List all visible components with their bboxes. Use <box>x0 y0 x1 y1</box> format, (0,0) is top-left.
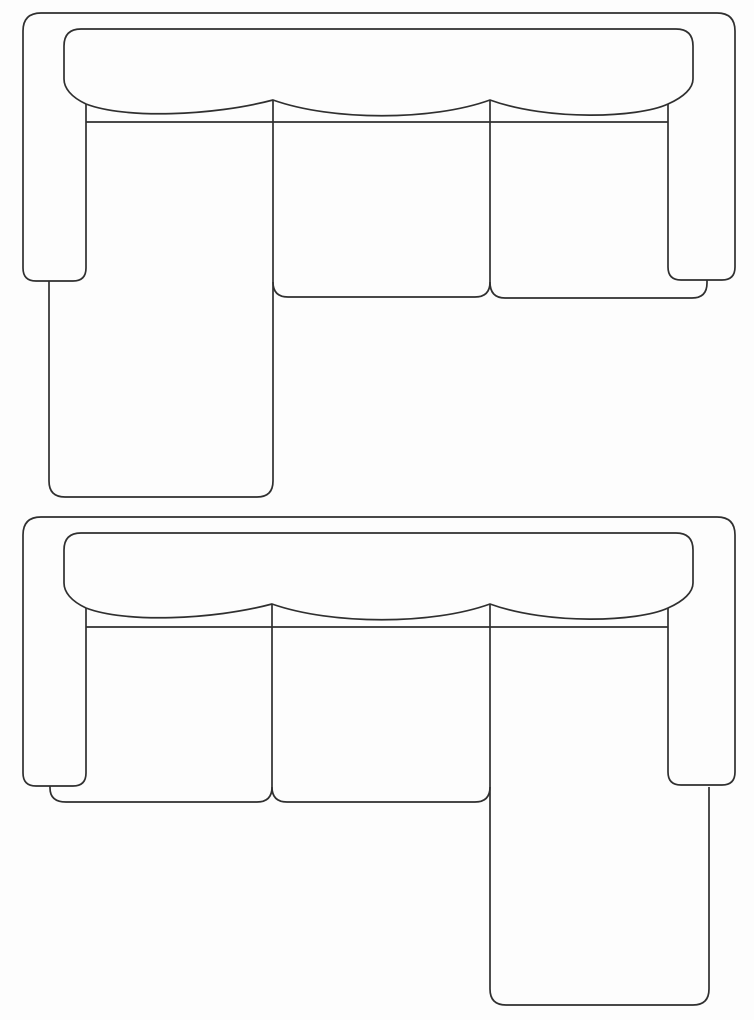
middle-seat-cushion <box>272 787 490 802</box>
sofa-top-view-left-chaise <box>23 13 735 497</box>
back-cushions-scalloped <box>64 533 693 620</box>
middle-seat-cushion <box>273 282 490 297</box>
diagram-canvas <box>0 0 754 1020</box>
sectional-sofa-diagram-svg <box>0 0 754 1020</box>
outer-frame-back-and-arms <box>23 13 735 281</box>
back-cushions-scalloped <box>64 29 693 116</box>
left-seat-cushion <box>50 786 272 802</box>
chaise-right <box>490 604 709 1005</box>
chaise-left <box>49 100 273 497</box>
right-seat-cushion <box>490 280 707 298</box>
outer-frame-back-and-arms <box>23 517 735 786</box>
sofa-top-view-right-chaise <box>23 517 735 1005</box>
